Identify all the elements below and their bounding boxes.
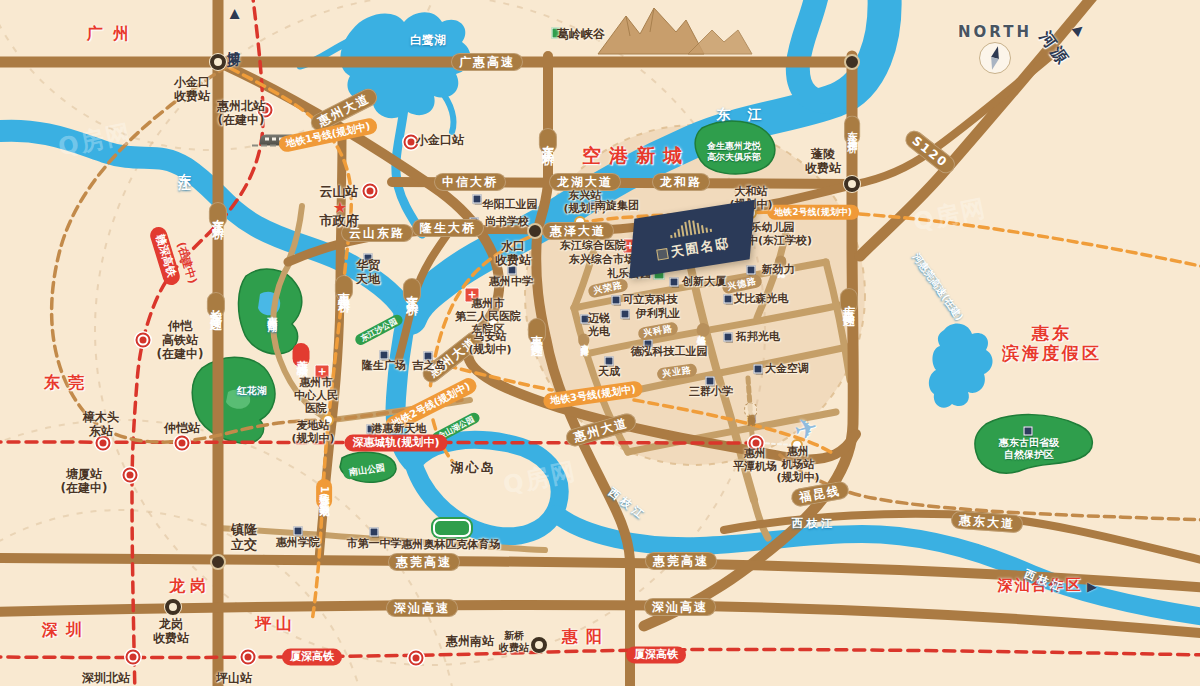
region-konggang-xincheng: 空港新城 — [582, 144, 690, 166]
heyuan-arrow-icon: ▶ — [1069, 20, 1086, 38]
toll-shuikou: 水口 收费站 — [495, 239, 531, 267]
poi-ganghui: 港惠新天地 — [372, 423, 427, 436]
park-dongjiangsha: 东江沙公园 — [353, 313, 404, 348]
poi-daikin: 大金空调 — [765, 363, 809, 376]
huizhou-south-station-icon — [409, 651, 424, 666]
station-maan: 马安站 (规划中) — [468, 331, 511, 357]
lake-bailuhu: 白鹭湖 — [410, 33, 446, 47]
road-jichang-ave: 机场大道 — [696, 322, 711, 338]
toll-longgang: 龙岗 收费站 — [153, 617, 189, 645]
station-pingshan: 坪山站 — [216, 671, 252, 685]
region-huiyang: 惠阳 — [562, 628, 610, 647]
region-shenzhen: 深圳 — [42, 621, 90, 640]
compass-icon — [979, 42, 1011, 74]
toll-pengling: 蓬陵 收费站 — [805, 147, 841, 175]
poi-olympic-stadium: 惠州奥林匹克体育场 — [402, 539, 501, 552]
poi-absen: 艾比森光电 — [734, 293, 789, 306]
road-longsheng-bridge: 隆生大桥 — [412, 219, 484, 237]
olympic-stadium-icon — [433, 519, 471, 537]
station-airport-planned: 惠州 机场站 (规划中) — [776, 446, 819, 485]
road-hehuiguan-expwy: 河惠莞高速(在建) — [910, 251, 965, 323]
shenshan-arrow-icon: ▶ — [1087, 579, 1097, 594]
logo-seal-icon — [656, 248, 669, 261]
road-huizhou-ave-3: 惠州大道 — [564, 411, 638, 448]
gutian-reserve-icon — [1024, 427, 1033, 436]
shenzhen-north-station-icon — [126, 650, 141, 665]
river-xizhijiang-2: 西 枝 江 — [792, 518, 833, 531]
station-maidi: 麦地站 (规划中) — [291, 420, 334, 446]
project-name: 天囿名邸 — [669, 234, 731, 261]
region-pingshan: 坪山 — [255, 615, 297, 634]
map-canvas[interactable]: 天囿名邸 Q房网Q房网Q房网★+++✈▶▶▶广州东莞深圳龙岗坪山惠阳空港新城惠东… — [0, 0, 1200, 686]
watermark: Q房网 — [910, 192, 989, 239]
watermark: Q房网 — [55, 117, 134, 164]
road-xingke-rd: 兴科路 — [637, 321, 679, 340]
valley-gelingxiagu: 葛岭峡谷 — [557, 27, 605, 41]
poi-jusco: 吉之岛 — [413, 360, 446, 373]
road-planned: 规划中道路 — [744, 403, 757, 418]
rail-guanhui-intercity: 莞惠城轨 — [293, 343, 310, 367]
soundwave-icon — [668, 217, 712, 238]
project-logo-inner: 天囿名邸 — [652, 214, 731, 263]
pingshan-station-icon — [241, 650, 256, 665]
river-dongjiang-west: 东江 — [176, 162, 191, 174]
watermark: Q房网 — [500, 455, 579, 502]
daikin-icon — [754, 365, 763, 374]
poi-xinjinli: 新劲力 — [762, 264, 795, 277]
toll-xiaojinkou: 小金口 收费站 — [174, 75, 210, 103]
road-guanghui-expwy: 广惠高速 — [451, 53, 523, 71]
tangxia-station-icon — [123, 468, 138, 483]
poi-longsheng-plaza: 隆生广场 — [362, 360, 406, 373]
chuangxin-tower-icon — [670, 278, 679, 287]
poi-zhenlong-interchange: 镇隆 立交 — [231, 522, 257, 553]
station-xiaojinkou: 小金口站 — [416, 133, 464, 147]
dir-boluo: 博罗 — [226, 39, 243, 45]
region-longgang: 龙岗 — [169, 577, 211, 596]
poi-nanxuan-group: 南旋集团 — [595, 200, 639, 213]
node-northeast-junction — [844, 54, 860, 70]
toll-xinqiao: 新桥 收费站 — [499, 630, 529, 654]
poi-huizhou-middle-school: 惠州中学 — [489, 276, 533, 289]
xinjinli-icon — [747, 266, 756, 275]
poi-mairui: 迈锐 光电 — [588, 313, 610, 339]
poi-huizhou-college: 惠州学院 — [276, 537, 320, 550]
road-zhongxin-bridge: 中信大桥 — [434, 173, 506, 191]
road-shenshan-expwy-1: 深汕高速 — [386, 599, 458, 617]
station-huizhou-north: 惠州北站 (在建中) — [217, 99, 265, 127]
north-label: NORTH — [958, 24, 1032, 42]
label-layer: Q房网Q房网Q房网★+++✈▶▶▶广州东莞深圳龙岗坪山惠阳空港新城惠东 滨海度假… — [0, 0, 1200, 686]
station-huizhou-south: 惠州南站 — [446, 634, 494, 648]
road-changshen-expwy: 长深高速 — [207, 292, 225, 318]
poi-yili: 伊利乳业 — [636, 308, 680, 321]
station-zhongkai: 仲恺站 — [164, 421, 200, 435]
road-s120: S120 — [902, 127, 959, 177]
poi-chuangxin-tower: 创新大厦 — [682, 276, 726, 289]
poi-dongjiang-hospital: 东江综合医院 — [560, 240, 626, 253]
river-xizhijiang-1: 西枝江 — [605, 486, 648, 524]
station-zhongkai-hsr: 仲恺 高铁站 (在建中) — [157, 319, 204, 361]
poi-huayang-industrial: 华阳工业园 — [483, 199, 538, 212]
yunshan-station-icon — [363, 184, 378, 199]
zhongkai-hsr-station-icon — [136, 333, 151, 348]
station-zhangmutou-east: 樟木头 东站 — [83, 410, 119, 438]
poi-sanqun-school: 三群小学 — [689, 386, 733, 399]
poi-central-hospital: 惠州市 中心人民 医院 — [294, 377, 338, 416]
poi-golf-club: 金生惠州龙悦 高尔夫俱乐部 — [707, 141, 761, 162]
park-xihu: 惠州西湖 — [266, 308, 278, 316]
road-huidong-ave: 惠东大道 — [950, 510, 1023, 533]
absen-icon — [724, 295, 733, 304]
road-longhe-rd: 龙和路 — [652, 173, 710, 191]
kelike-icon — [612, 296, 621, 305]
road-huize-ave: 惠泽大道 — [542, 222, 614, 240]
node-zhenlong-interchange — [210, 554, 226, 570]
poi-kelike: 可立克科技 — [623, 294, 678, 307]
yili-icon — [621, 310, 630, 319]
no1-middle-school-icon — [370, 528, 379, 537]
region-guangzhou: 广州 — [87, 25, 139, 44]
huizhou-college-icon — [294, 527, 303, 536]
road-huida-expwy: 惠大高速 — [528, 318, 546, 344]
node-shuikou-toll — [527, 223, 543, 239]
bridge-huizhou: 惠州大桥 — [335, 275, 353, 301]
river-dongjiang: 东 江 — [717, 106, 768, 123]
dir-heyuan: 河源 — [1035, 28, 1072, 70]
rail-xiashen-hsr-2: 厦深高铁 — [626, 647, 686, 664]
metro-line1-b: 地铁1号线(规划中) — [316, 479, 332, 509]
poi-shangshu-school: 尚书学校 — [485, 216, 529, 229]
park-honghuahu: 红花湖 — [237, 385, 267, 397]
road-guanghui-expwy-v: 广惠高速 — [840, 288, 858, 314]
node-longgang-toll — [165, 599, 181, 615]
bridge-dongjiang-2: 东江大桥 — [539, 128, 557, 154]
road-huiguan-expwy-1: 惠莞高速 — [388, 553, 460, 571]
island-huxindao: 湖心岛 — [451, 460, 496, 475]
station-tangxia: 塘厦站 (在建中) — [61, 467, 108, 495]
metro-line2-a: 地铁2号线(规划中) — [767, 205, 859, 220]
huayang-icon — [473, 195, 482, 204]
road-shenshan-expwy-2: 深汕高速 — [644, 598, 716, 616]
region-dongguan: 东莞 — [44, 374, 92, 393]
rail-shenhui-intercity: 深惠城轨(规划中) — [344, 435, 447, 452]
bridge-dongjiang-1: 东江大桥 — [209, 202, 227, 228]
poi-dehong-industrial: 德泓科技工业园 — [631, 346, 708, 359]
rail-xiashen-hsr-1: 厦深高铁 — [282, 649, 342, 666]
bridge-dongjiang-3: 东江大桥 — [403, 278, 421, 304]
road-xingye-rd: 兴业路 — [656, 363, 697, 381]
poi-tuobang: 拓邦光电 — [736, 331, 780, 344]
metro-line3: 地铁3号线(规划中) — [542, 380, 643, 410]
poi-huamao: 华贸 天地 — [356, 258, 380, 286]
boluo-arrow-icon: ▶ — [226, 9, 241, 19]
station-yunshan: 云山站 — [320, 184, 359, 199]
bridge-dongjiang-main: 东江主槽桥 — [844, 116, 860, 145]
poi-tiancheng: 天成 — [598, 366, 620, 379]
region-huidong-resort: 惠东 滨海度假区 — [1002, 323, 1102, 363]
zhongkai-station-icon — [175, 436, 190, 451]
poi-dongxing-market: 东兴综合市场 — [569, 254, 635, 267]
poi-city-hall: 市政府 — [320, 213, 359, 228]
node-xinqiao-toll — [531, 637, 547, 653]
node-pengling-toll — [844, 176, 860, 192]
station-pingtan-airport: 惠州 平潭机场 — [733, 448, 777, 474]
park-nanshan: 南山公园 — [342, 460, 391, 479]
station-shenzhen-north: 深圳北站 — [82, 671, 130, 685]
road-huiguan-expwy-2: 惠莞高速 — [645, 552, 717, 570]
poi-no1-middle-school: 市第一中学 — [347, 538, 402, 551]
node-xiaojinkou-toll — [210, 54, 226, 70]
tuobang-icon — [724, 333, 733, 342]
reserve-gutian: 惠东古田省级 自然保护区 — [999, 437, 1059, 461]
